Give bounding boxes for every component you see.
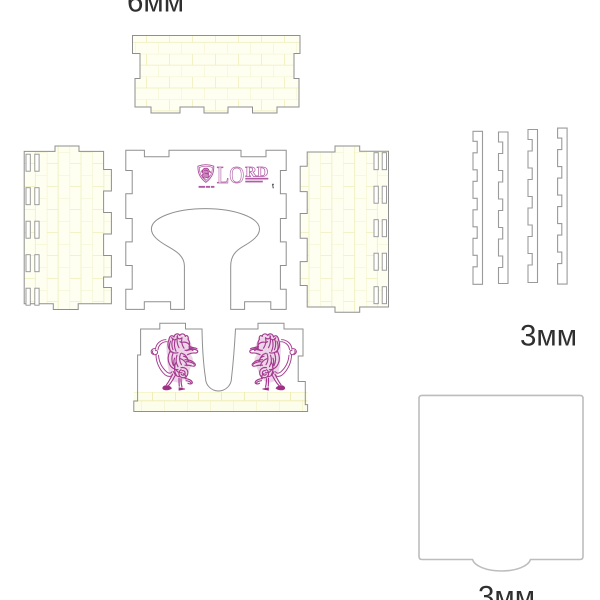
svg-text:3мм: 3мм [520,320,577,353]
svg-text:6мм: 6мм [127,0,184,19]
svg-text:3мм: 3мм [478,581,535,600]
svg-text:LO: LO [217,162,245,189]
